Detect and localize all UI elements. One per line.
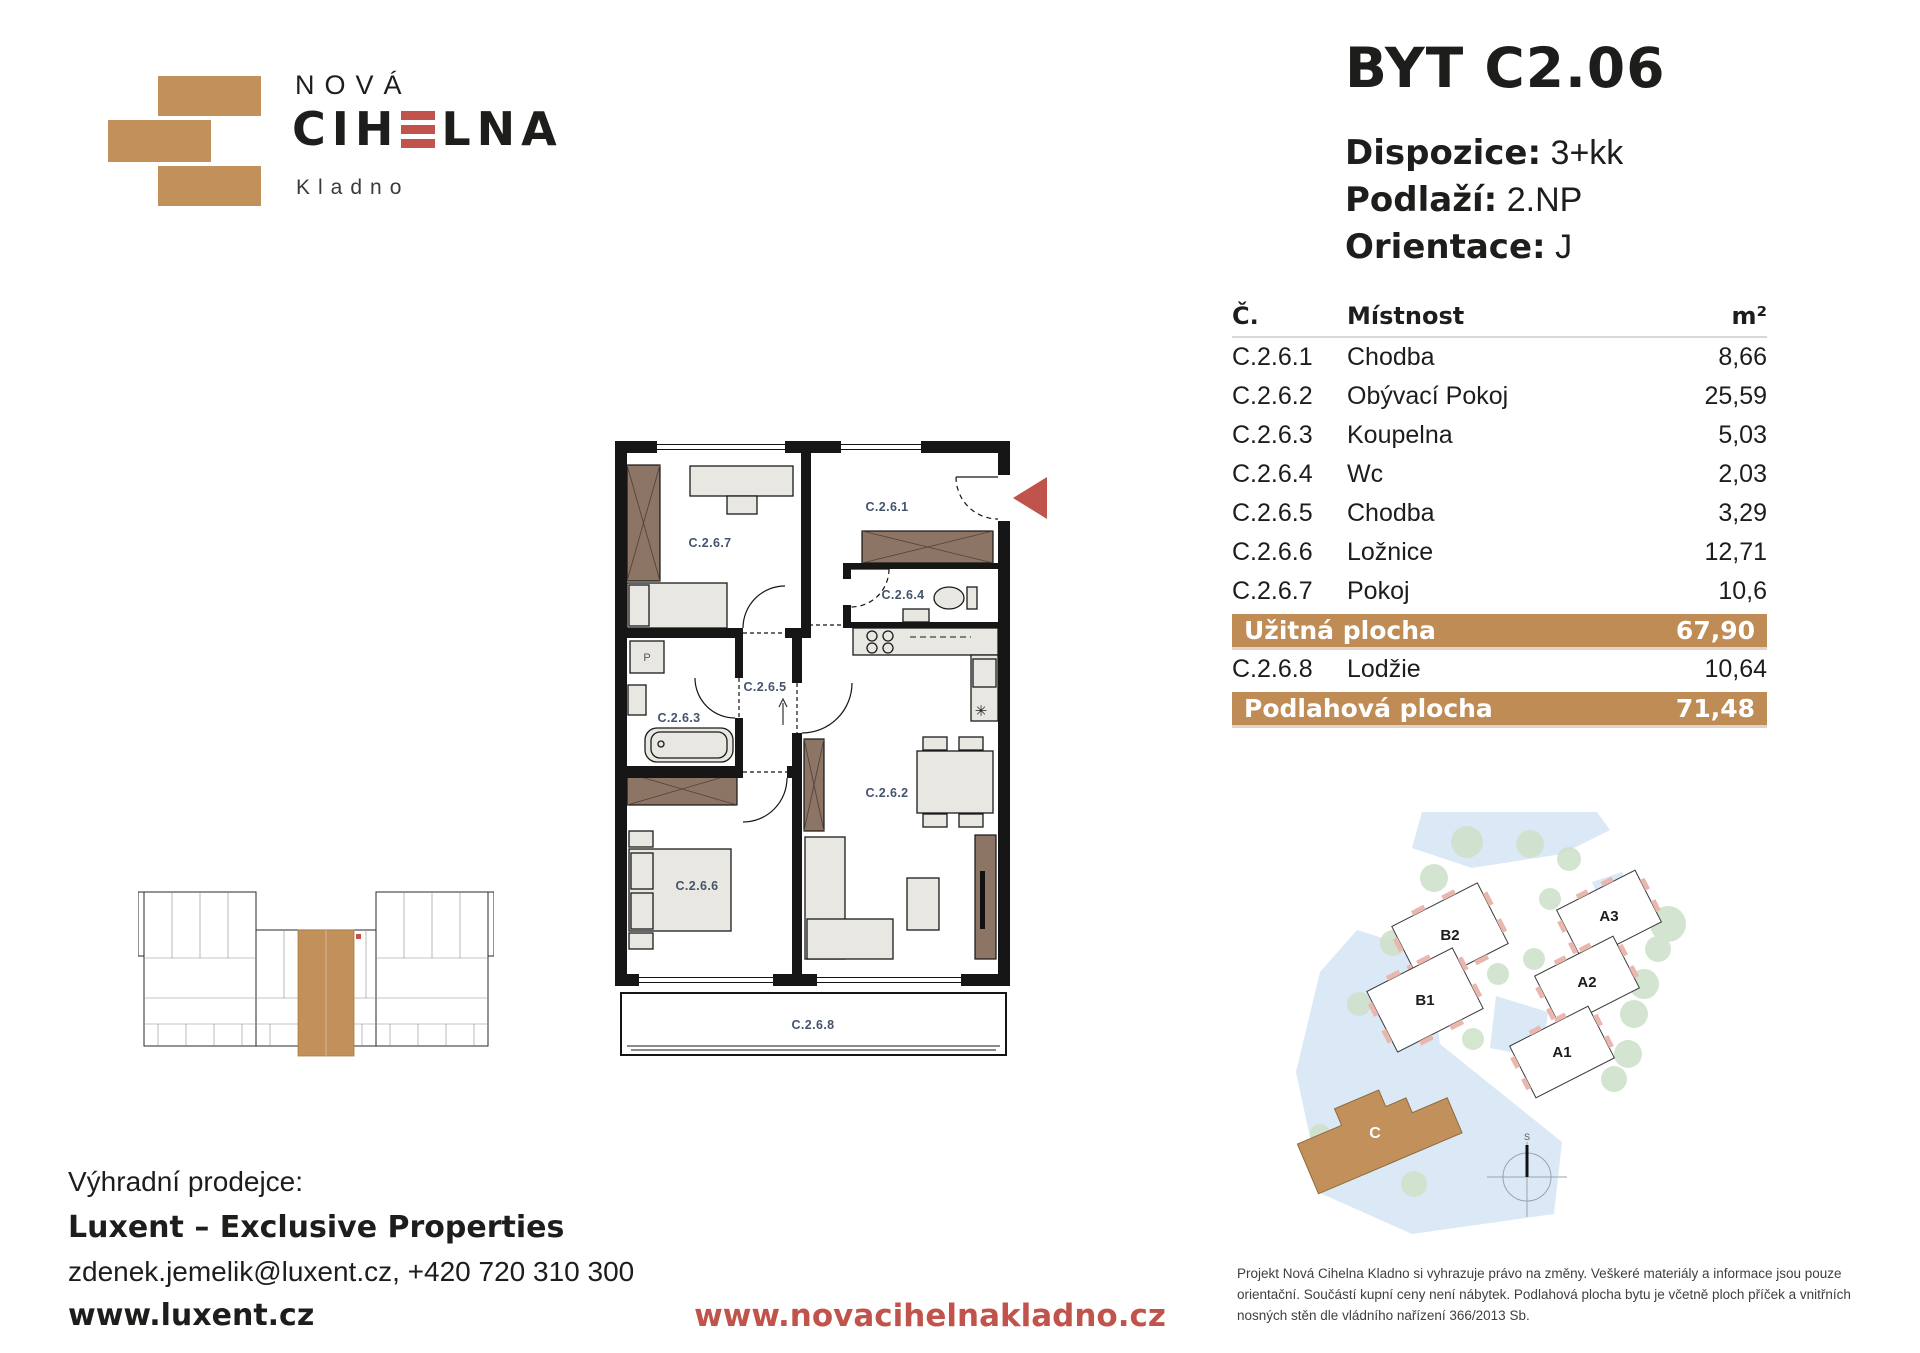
- disclaimer-text: Projekt Nová Cihelna Kladno si vyhrazuje…: [1237, 1264, 1897, 1327]
- apartment-sheet: NOVÁ CIHLNA Kladno BYT C2.06 Dispozice: …: [0, 0, 1920, 1353]
- seller-label: Výhradní prodejce:: [68, 1166, 303, 1198]
- sink-symbol: ✳: [975, 703, 988, 720]
- floor-key-plan: [138, 878, 494, 1064]
- col-room: Místnost: [1347, 302, 1672, 330]
- spec-list: Dispozice: 3+kk Podlaží: 2.NP Orientace:…: [1345, 130, 1623, 271]
- room-label: C.2.6.3: [657, 711, 700, 725]
- useful-area-band: Užitná plocha 67,90: [1232, 614, 1767, 647]
- spec-orientace: Orientace: J: [1345, 224, 1623, 271]
- page-title: BYT C2.06: [1345, 36, 1665, 100]
- table-row: C.2.6.6Ložnice12,71: [1232, 533, 1767, 572]
- table-row: C.2.6.4Wc2,03: [1232, 455, 1767, 494]
- room-label: C.2.6.6: [675, 879, 718, 893]
- logo-city: Kladno: [296, 176, 409, 200]
- room-label: C.2.6.8: [791, 1018, 834, 1032]
- logo-e-icon: [401, 111, 435, 148]
- seller-contact: zdenek.jemelik@luxent.cz, +420 720 310 3…: [68, 1256, 634, 1288]
- room-label: C.2.6.4: [881, 588, 924, 602]
- washer-symbol: P: [643, 652, 650, 664]
- room-label: C.2.6.1: [865, 500, 908, 514]
- compass-north-label: S: [1524, 1132, 1530, 1142]
- table-row: C.2.6.7Pokoj10,6: [1232, 572, 1767, 611]
- room-table: Č. Místnost m² C.2.6.1Chodba8,66 C.2.6.2…: [1232, 296, 1767, 728]
- logo-brand: CIHLNA: [292, 102, 563, 156]
- key-plan-marker: [356, 934, 361, 939]
- seller-url-link[interactable]: www.luxent.cz: [68, 1298, 314, 1333]
- logo-brand-pre: CIH: [292, 102, 399, 156]
- site-plan: B2 B1 A3 A2 A1 C S: [1262, 812, 1748, 1250]
- site-label-a3: A3: [1599, 908, 1618, 925]
- table-row: C.2.6.2Obývací Pokoj25,59: [1232, 377, 1767, 416]
- logo-bricks-icon: [108, 72, 268, 204]
- col-number: Č.: [1232, 302, 1347, 330]
- site-label-b2: B2: [1440, 927, 1459, 944]
- site-label-a2: A2: [1577, 974, 1596, 991]
- project-url-link[interactable]: www.novacihelnakladno.cz: [690, 1298, 1170, 1334]
- spec-dispozice: Dispozice: 3+kk: [1345, 130, 1623, 177]
- table-header: Č. Místnost m²: [1232, 296, 1767, 338]
- room-label: C.2.6.5: [743, 680, 786, 694]
- table-row: C.2.6.5Chodba3,29: [1232, 494, 1767, 533]
- spec-podlazi: Podlaží: 2.NP: [1345, 177, 1623, 224]
- logo-brand-post: LNA: [441, 102, 562, 156]
- site-label-c: C: [1369, 1125, 1381, 1142]
- seller-name: Luxent – Exclusive Properties: [68, 1210, 564, 1245]
- table-row-loggia: C.2.6.8Lodžie10,64: [1232, 650, 1767, 689]
- col-area: m²: [1672, 302, 1767, 330]
- table-row: C.2.6.1Chodba8,66: [1232, 338, 1767, 377]
- floor-area-band: Podlahová plocha 71,48: [1232, 692, 1767, 725]
- floor-plan: C.2.6.7 C.2.6.1 C.2.6.4 C.2.6.5 C.2.6.3 …: [615, 441, 1047, 1063]
- site-label-a1: A1: [1552, 1044, 1571, 1061]
- table-row: C.2.6.3Koupelna5,03: [1232, 416, 1767, 455]
- entry-arrow-icon: [1013, 477, 1047, 519]
- site-label-b1: B1: [1415, 992, 1434, 1009]
- room-label: C.2.6.7: [688, 536, 731, 550]
- logo-line1: NOVÁ: [295, 70, 412, 101]
- room-label: C.2.6.2: [865, 786, 908, 800]
